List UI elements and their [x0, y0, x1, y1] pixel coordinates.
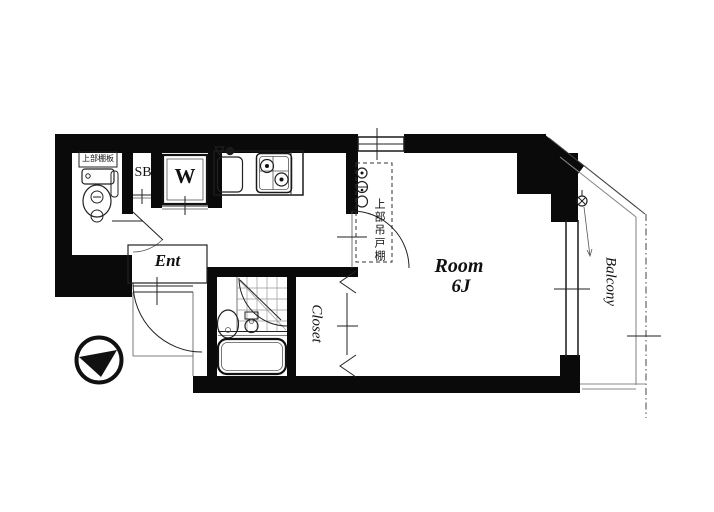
balcony-window: [554, 220, 590, 357]
closet: [337, 271, 358, 377]
upper-cabinet-label: 上部吊戸棚: [367, 194, 385, 266]
room-name-label: Room: [409, 256, 509, 276]
kitchen: [214, 147, 303, 195]
shower-tile-floor: [237, 277, 287, 331]
north-compass-icon: [77, 338, 122, 383]
entrance-door-arc: [133, 283, 202, 352]
room-size-label: 6J: [411, 277, 511, 296]
floor-plan: Ent SB W 上部棚板 上部吊戸棚 Room 6J Closet Balco…: [0, 0, 714, 512]
shoe-box-label: SB: [130, 166, 156, 180]
washbasin-icon: [218, 310, 239, 338]
bathroom: [218, 277, 288, 374]
toilet-door: [133, 212, 163, 252]
washing-machine-label: W: [163, 166, 207, 187]
entrance-label: Ent: [128, 252, 207, 269]
closet-label: Closet: [309, 264, 324, 384]
toilet-shelf-label: 上部棚板: [80, 155, 116, 163]
bathtub-icon: [218, 339, 286, 374]
balcony-faucet-icon: [577, 190, 592, 256]
shoe-box: [133, 189, 151, 204]
utility-valve-icons: [357, 168, 368, 207]
kitchen-window: [358, 128, 404, 160]
balcony-label: Balcony: [603, 222, 618, 342]
stove-icon: [257, 154, 292, 193]
